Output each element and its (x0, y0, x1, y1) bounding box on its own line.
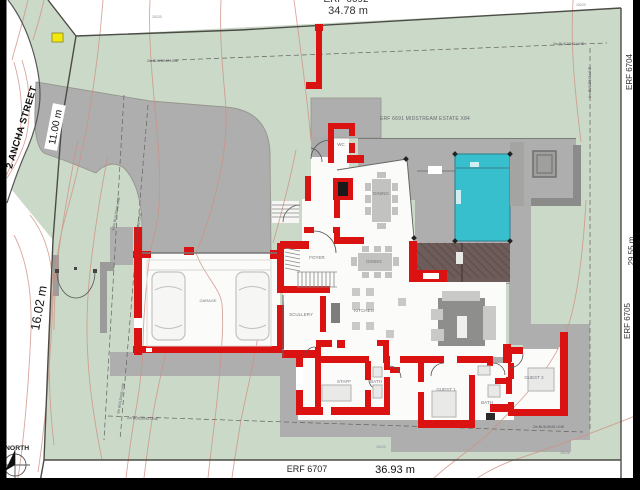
svg-text:BATH: BATH (481, 400, 493, 405)
svg-text:DINING: DINING (373, 191, 389, 196)
svg-text:KITCHEN: KITCHEN (354, 308, 374, 313)
svg-text:GUEST 2: GUEST 2 (524, 375, 544, 380)
svg-text:15226: 15226 (560, 451, 570, 455)
svg-text:36.93 m: 36.93 m (375, 464, 415, 476)
svg-text:BATH: BATH (370, 379, 382, 384)
svg-text:GUEST 1: GUEST 1 (436, 387, 456, 392)
svg-text:34.78 m: 34.78 m (328, 5, 368, 17)
svg-text:ERF 6704: ERF 6704 (625, 53, 634, 90)
svg-text:STAFF: STAFF (337, 379, 351, 384)
svg-text:ERF 6692: ERF 6692 (323, 0, 368, 5)
svg-text:15220: 15220 (152, 15, 162, 19)
svg-text:2m BUILDING LINE: 2m BUILDING LINE (553, 42, 585, 46)
svg-text:2m BUILDING LINE: 2m BUILDING LINE (147, 59, 179, 63)
svg-text:NORTH: NORTH (5, 445, 29, 452)
svg-text:WC: WC (337, 142, 345, 147)
svg-text:15220: 15220 (376, 445, 386, 449)
svg-text:FOYER: FOYER (309, 255, 325, 260)
svg-text:GARAGE: GARAGE (199, 298, 216, 303)
svg-text:DINING: DINING (366, 259, 382, 264)
svg-text:2m BUILDING LINE: 2m BUILDING LINE (588, 66, 592, 98)
svg-text:ERF 6705: ERF 6705 (623, 302, 632, 339)
svg-text:2m BUILDING LINE: 2m BUILDING LINE (533, 425, 565, 429)
svg-text:ERF 6707: ERF 6707 (287, 464, 328, 474)
svg-text:SCULLERY: SCULLERY (289, 312, 313, 317)
svg-text:ERF 6691 MIDSTREAM ESTATE X84: ERF 6691 MIDSTREAM ESTATE X84 (380, 116, 470, 122)
svg-text:15220: 15220 (576, 3, 586, 7)
